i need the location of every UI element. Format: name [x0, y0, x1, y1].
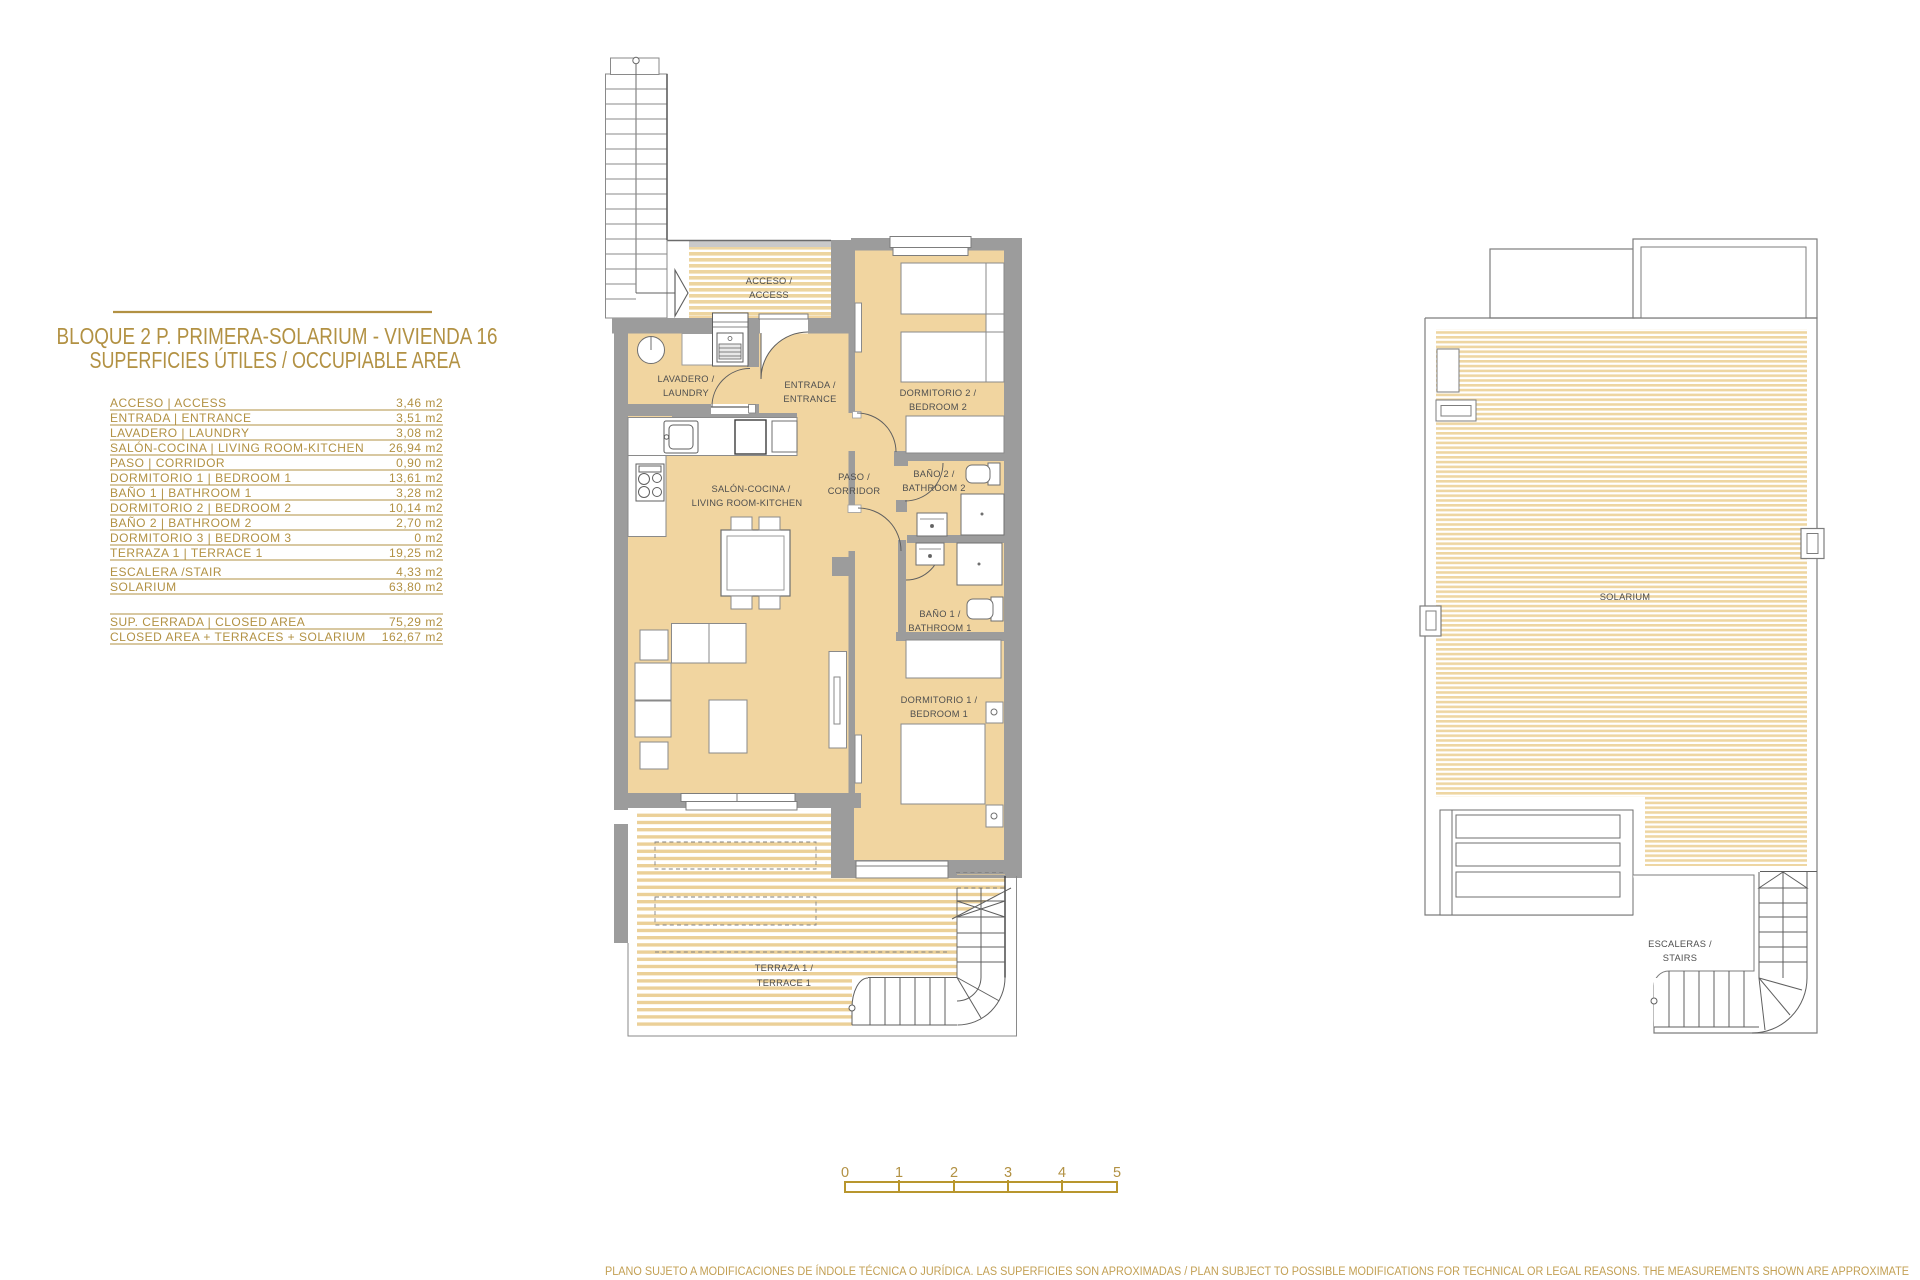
svg-text:SALÓN-COCINA | LIVING ROOM-KIT: SALÓN-COCINA | LIVING ROOM-KITCHEN	[110, 440, 364, 455]
svg-text:BLOQUE 2 P. PRIMERA-SOLARIUM -: BLOQUE 2 P. PRIMERA-SOLARIUM - VIVIENDA …	[57, 323, 498, 349]
svg-text:BAÑO 1 | BATHROOM 1: BAÑO 1 | BATHROOM 1	[110, 486, 252, 500]
svg-text:3,08 m2: 3,08 m2	[396, 426, 443, 440]
svg-text:TERRACE 1: TERRACE 1	[757, 978, 811, 988]
svg-text:4: 4	[1058, 1165, 1066, 1181]
svg-text:BAÑO 2 /: BAÑO 2 /	[913, 469, 954, 479]
svg-text:PASO | CORRIDOR: PASO | CORRIDOR	[110, 456, 225, 470]
svg-text:CLOSED AREA + TERRACES + SOLAR: CLOSED AREA + TERRACES + SOLARIUM	[110, 630, 366, 644]
svg-text:TERRAZA 1 | TERRACE 1: TERRAZA 1 | TERRACE 1	[110, 546, 263, 560]
svg-text:ENTRADA | ENTRANCE: ENTRADA | ENTRANCE	[110, 411, 251, 425]
svg-text:19,25 m2: 19,25 m2	[389, 546, 443, 560]
svg-text:DORMITORIO 1 | BEDROOM 1: DORMITORIO 1 | BEDROOM 1	[110, 471, 292, 485]
svg-text:CORRIDOR: CORRIDOR	[828, 486, 881, 496]
svg-text:DORMITORIO 1 /: DORMITORIO 1 /	[901, 695, 978, 705]
svg-text:ENTRADA /: ENTRADA /	[784, 380, 835, 390]
svg-text:BATHROOM 1: BATHROOM 1	[908, 623, 971, 633]
svg-text:75,29 m2: 75,29 m2	[389, 615, 443, 629]
svg-text:PASO /: PASO /	[838, 472, 870, 482]
svg-text:3,28 m2: 3,28 m2	[396, 486, 443, 500]
svg-text:162,67 m2: 162,67 m2	[382, 630, 443, 644]
svg-text:SOLARIUM: SOLARIUM	[1600, 592, 1651, 602]
svg-text:63,80 m2: 63,80 m2	[389, 580, 443, 594]
svg-text:SUP. CERRADA | CLOSED AREA: SUP. CERRADA | CLOSED AREA	[110, 615, 305, 629]
svg-text:LAUNDRY: LAUNDRY	[663, 388, 709, 398]
svg-text:DORMITORIO 2 | BEDROOM 2: DORMITORIO 2 | BEDROOM 2	[110, 501, 292, 515]
svg-text:26,94 m2: 26,94 m2	[389, 441, 443, 455]
svg-text:SUPERFICIES ÚTILES / OCCUPIABL: SUPERFICIES ÚTILES / OCCUPIABLE AREA	[90, 347, 462, 373]
svg-text:0,90 m2: 0,90 m2	[396, 456, 443, 470]
svg-text:10,14 m2: 10,14 m2	[389, 501, 443, 515]
svg-text:3,46 m2: 3,46 m2	[396, 396, 443, 410]
svg-text:DORMITORIO 3 | BEDROOM 3: DORMITORIO 3 | BEDROOM 3	[110, 531, 292, 545]
svg-text:SALÓN-COCINA /: SALÓN-COCINA /	[712, 484, 791, 494]
svg-text:ENTRANCE: ENTRANCE	[783, 394, 836, 404]
svg-text:PLANO SUJETO A MODIFICACIONES: PLANO SUJETO A MODIFICACIONES DE ÍNDOLE …	[605, 1265, 1909, 1278]
svg-text:SOLARIUM: SOLARIUM	[110, 580, 177, 594]
svg-text:2,70 m2: 2,70 m2	[396, 516, 443, 530]
svg-text:BAÑO 1 /: BAÑO 1 /	[919, 609, 960, 619]
svg-text:DORMITORIO 2 /: DORMITORIO 2 /	[900, 388, 977, 398]
svg-text:4,33 m2: 4,33 m2	[396, 565, 443, 579]
svg-text:0 m2: 0 m2	[414, 531, 443, 545]
svg-text:BEDROOM 2: BEDROOM 2	[909, 402, 967, 412]
svg-text:ESCALERAS /: ESCALERAS /	[1648, 939, 1712, 949]
svg-text:3,51 m2: 3,51 m2	[396, 411, 443, 425]
svg-text:ACCESO /: ACCESO /	[746, 276, 793, 286]
svg-text:13,61 m2: 13,61 m2	[389, 471, 443, 485]
svg-text:ESCALERA /STAIR: ESCALERA /STAIR	[110, 565, 222, 579]
svg-text:BAÑO 2 | BATHROOM 2: BAÑO 2 | BATHROOM 2	[110, 516, 252, 530]
svg-text:3: 3	[1004, 1165, 1012, 1181]
svg-text:BEDROOM 1: BEDROOM 1	[910, 709, 968, 719]
svg-text:ACCESS: ACCESS	[749, 290, 789, 300]
svg-text:LIVING ROOM-KITCHEN: LIVING ROOM-KITCHEN	[692, 498, 803, 508]
svg-text:STAIRS: STAIRS	[1663, 953, 1697, 963]
svg-text:ACCESO | ACCESS: ACCESO | ACCESS	[110, 396, 227, 410]
svg-text:2: 2	[950, 1165, 958, 1181]
svg-text:0: 0	[841, 1165, 849, 1181]
svg-text:TERRAZA 1 /: TERRAZA 1 /	[755, 963, 814, 973]
svg-text:5: 5	[1113, 1165, 1121, 1181]
svg-text:LAVADERO /: LAVADERO /	[658, 374, 715, 384]
svg-text:1: 1	[895, 1165, 903, 1181]
svg-text:BATHROOM 2: BATHROOM 2	[902, 483, 965, 493]
svg-text:LAVADERO | LAUNDRY: LAVADERO | LAUNDRY	[110, 426, 250, 440]
